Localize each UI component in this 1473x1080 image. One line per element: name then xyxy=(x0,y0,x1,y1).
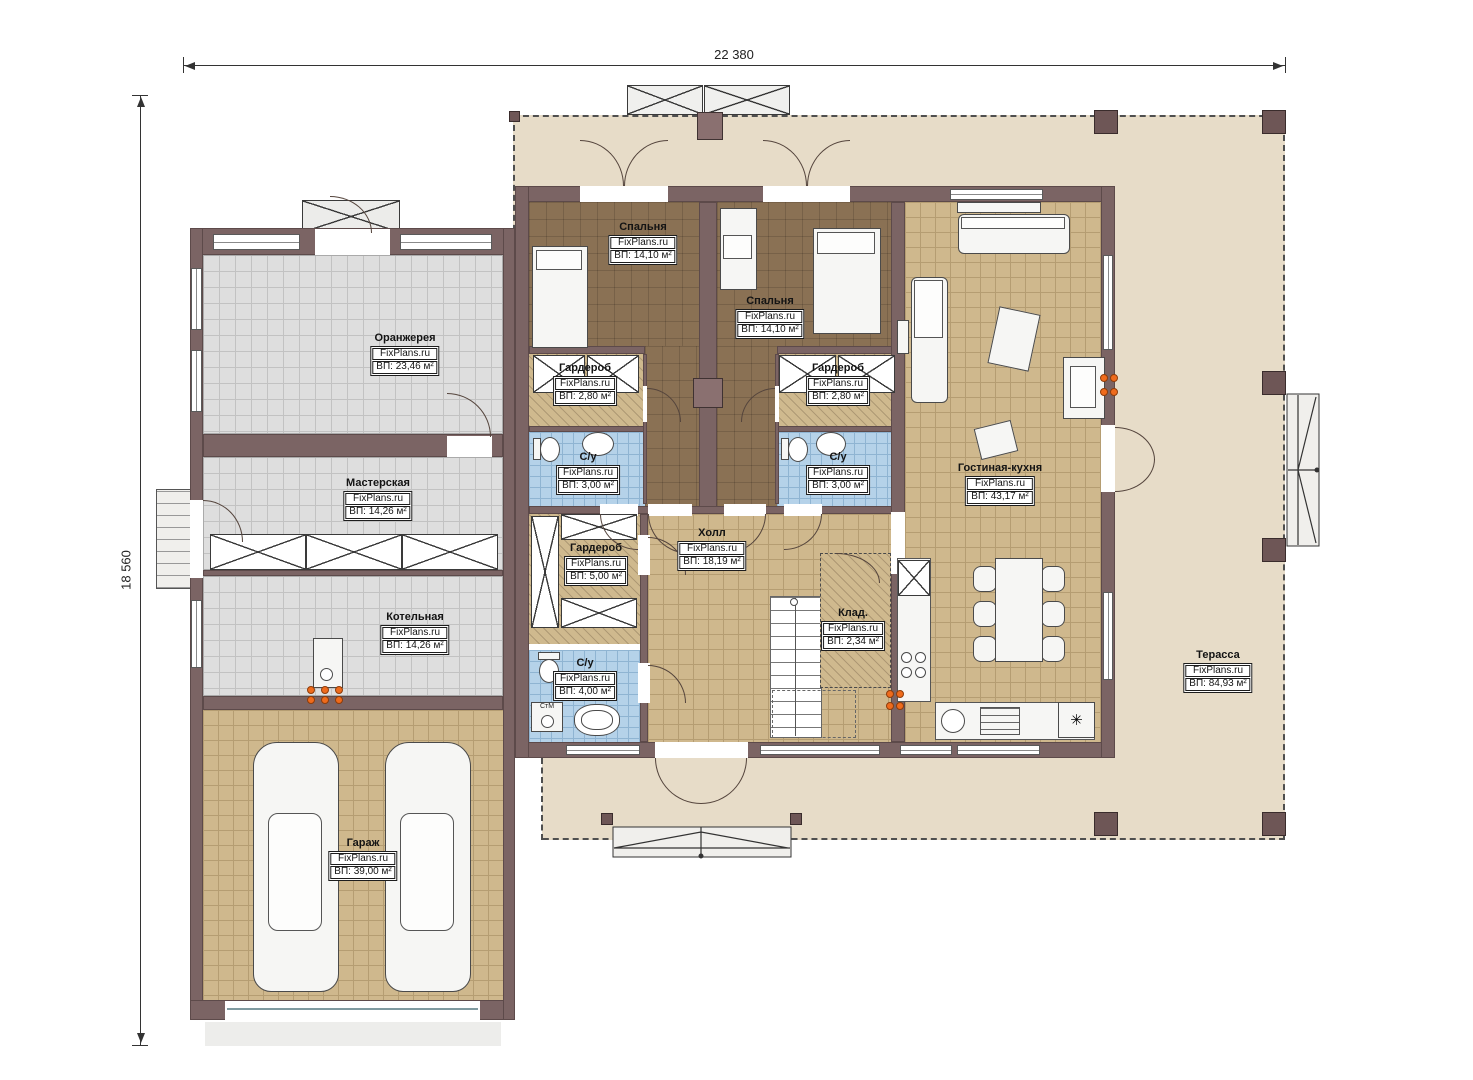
brand: FixPlans.ru xyxy=(555,673,615,686)
window xyxy=(950,189,1043,200)
wall xyxy=(777,426,897,432)
area-value: ВП: 39,00 м² xyxy=(330,866,395,879)
kitchen-cabinet xyxy=(898,560,930,596)
heat-dot xyxy=(1100,388,1108,396)
hob-burner xyxy=(901,652,912,663)
room-label-wardrobe2: ГардеробFixPlans.ruВП: 2,80 м² xyxy=(806,363,870,406)
wall xyxy=(515,186,529,758)
heat-dot xyxy=(886,702,894,710)
brand: FixPlans.ru xyxy=(345,493,410,506)
room-name: С/у xyxy=(553,658,617,670)
brand: FixPlans.ru xyxy=(610,237,675,250)
dining-chair xyxy=(973,566,997,592)
terrace-cut-edge xyxy=(541,758,543,840)
room-name: Спальня xyxy=(608,222,677,234)
room-name: Клад. xyxy=(821,608,885,620)
chimney-block xyxy=(697,112,723,140)
fridge: ✳ xyxy=(1058,702,1095,738)
garage-door-line xyxy=(227,1008,478,1010)
workshop-shelf xyxy=(402,534,498,570)
washer-door xyxy=(541,715,554,728)
boiler-floor xyxy=(203,576,503,696)
terrace-column xyxy=(1262,371,1286,395)
room-name: С/у xyxy=(556,452,620,464)
fridge-snowflake-icon: ✳ xyxy=(1070,711,1083,729)
room-label-garage: ГаражFixPlans.ruВП: 39,00 м² xyxy=(328,838,397,881)
dishwasher xyxy=(980,707,1020,735)
left-dimension-line xyxy=(140,95,141,1045)
brand: FixPlans.ru xyxy=(382,627,447,640)
heat-dot xyxy=(1110,374,1118,382)
heat-dot xyxy=(886,690,894,698)
room-label-bath1: С/уFixPlans.ruВП: 3,00 м² xyxy=(556,452,620,495)
boiler-gauge xyxy=(320,668,333,681)
room-name: С/у xyxy=(806,452,870,464)
bedroom2-strip xyxy=(717,346,777,506)
heat-dot xyxy=(896,702,904,710)
dim-tick xyxy=(1285,57,1286,73)
chaise-sofa xyxy=(911,277,948,403)
wardrobe-unit xyxy=(561,598,637,628)
room-label-wardrobe3: ГардеробFixPlans.ruВП: 5,00 м² xyxy=(564,543,628,586)
area-value: ВП: 2,80 м² xyxy=(808,391,868,404)
terrace-side-steps xyxy=(1286,393,1320,547)
main-entrance-opening xyxy=(655,742,748,758)
room-label-bedroom2: СпальняFixPlans.ruВП: 14,10 м² xyxy=(735,296,804,339)
room-name: Мастерская xyxy=(343,478,412,490)
area-value: ВП: 14,10 м² xyxy=(737,324,802,337)
cabinet-shelf xyxy=(723,235,752,259)
bedroom2-cabinet xyxy=(720,208,757,290)
stair-landing-dashed xyxy=(772,690,856,738)
window xyxy=(213,234,300,250)
heat-dot xyxy=(335,686,343,694)
heat-dot xyxy=(896,690,904,698)
brand: FixPlans.ru xyxy=(555,378,615,391)
room-name: Гардероб xyxy=(806,363,870,375)
pillow xyxy=(536,250,582,270)
dining-table xyxy=(995,558,1043,662)
car xyxy=(385,742,471,992)
window xyxy=(900,745,952,755)
wall-tv xyxy=(897,320,909,354)
bed xyxy=(813,228,881,334)
heat-dot xyxy=(321,686,329,694)
heat-dot xyxy=(321,696,329,704)
car-roof xyxy=(400,813,454,931)
terrace-corner-post xyxy=(509,111,520,122)
wall xyxy=(529,506,897,514)
tv-stand xyxy=(957,202,1041,213)
terrace-column xyxy=(1262,110,1286,134)
brand: FixPlans.ru xyxy=(808,467,868,480)
heat-dot xyxy=(307,686,315,694)
sofa xyxy=(958,214,1070,254)
area-value: ВП: 3,00 м² xyxy=(558,480,618,493)
brand: FixPlans.ru xyxy=(330,853,395,866)
hob-burner xyxy=(915,667,926,678)
room-name: Гардероб xyxy=(553,363,617,375)
room-label-bath3: С/уFixPlans.ruВП: 4,00 м² xyxy=(553,658,617,701)
area-value: ВП: 4,00 м² xyxy=(555,686,615,699)
room-name: Спальня xyxy=(735,296,804,308)
workshop-shelf xyxy=(306,534,402,570)
porch-steps xyxy=(612,826,792,860)
window xyxy=(1103,255,1113,350)
room-label-wardrobe1: ГардеробFixPlans.ruВП: 2,80 м² xyxy=(553,363,617,406)
area-value: ВП: 5,00 м² xyxy=(566,571,626,584)
dining-chair xyxy=(973,601,997,627)
sofa-back xyxy=(961,217,1065,229)
terrace-column xyxy=(1262,538,1286,562)
area-value: ВП: 23,46 м² xyxy=(372,361,437,374)
area-value: ВП: 3,00 м² xyxy=(808,480,868,493)
bed xyxy=(532,246,588,348)
wall xyxy=(203,570,503,576)
area-value: ВП: 14,26 м² xyxy=(345,506,410,519)
wall xyxy=(699,202,717,514)
brand: FixPlans.ru xyxy=(1185,665,1250,678)
area-value: ВП: 14,10 м² xyxy=(610,250,675,263)
washing-machine-label: СтМ xyxy=(540,703,554,710)
room-name: Оранжерея xyxy=(370,333,439,345)
wall xyxy=(503,228,515,1020)
fireplace xyxy=(1063,357,1105,419)
dining-chair xyxy=(1041,566,1065,592)
room-label-hall: ХоллFixPlans.ruВП: 18,19 м² xyxy=(677,528,746,571)
area-value: ВП: 14,26 м² xyxy=(382,640,447,653)
area-value: ВП: 18,19 м² xyxy=(679,556,744,569)
room-label-terrace: ТерассаFixPlans.ruВП: 84,93 м² xyxy=(1183,650,1252,693)
room-label-living: Гостиная-кухняFixPlans.ruВП: 43,17 м² xyxy=(958,463,1042,506)
area-value: ВП: 84,93 м² xyxy=(1185,678,1250,691)
dim-arrow-right xyxy=(1273,62,1283,70)
dim-arrow-down xyxy=(137,1033,145,1043)
wall xyxy=(777,346,897,354)
living-terrace-door xyxy=(1101,425,1115,492)
window xyxy=(191,268,202,330)
area-value: ВП: 2,34 м² xyxy=(823,636,883,649)
room-label-orangery: ОранжереяFixPlans.ruВП: 23,46 м² xyxy=(370,333,439,376)
car-roof xyxy=(268,813,322,931)
workshop-side-door xyxy=(190,500,203,578)
brand: FixPlans.ru xyxy=(558,467,618,480)
top-dimension-line xyxy=(183,65,1285,66)
wardrobe-unit xyxy=(531,516,559,628)
hob-burner xyxy=(915,652,926,663)
window xyxy=(191,600,202,668)
terrace-canopy-left xyxy=(627,85,703,115)
window xyxy=(566,745,640,755)
chaise-cushion xyxy=(914,280,943,338)
bedroom1-strip xyxy=(645,346,699,506)
dining-chair xyxy=(973,636,997,662)
heat-dot xyxy=(1100,374,1108,382)
heat-dot xyxy=(335,696,343,704)
brand: FixPlans.ru xyxy=(967,478,1032,491)
dim-tick xyxy=(183,57,184,73)
left-dimension-label: 18 560 xyxy=(119,550,134,590)
room-label-bedroom1: СпальняFixPlans.ruВП: 14,10 м² xyxy=(608,222,677,265)
toilet-bowl xyxy=(788,437,808,462)
room-name: Гардероб xyxy=(564,543,628,555)
fireplace-hearth xyxy=(1070,366,1096,408)
dim-tick xyxy=(132,95,148,96)
area-value: ВП: 43,17 м² xyxy=(967,491,1032,504)
room-label-storage: Клад.FixPlans.ruВП: 2,34 м² xyxy=(821,608,885,651)
orangery-door xyxy=(447,436,492,457)
brand: FixPlans.ru xyxy=(737,311,802,324)
side-entry-steps xyxy=(156,489,192,589)
porch-post xyxy=(601,813,613,825)
pillow xyxy=(817,232,875,254)
garage-apron xyxy=(205,1022,501,1046)
dining-chair xyxy=(1041,636,1065,662)
kitchen-sink xyxy=(941,709,965,733)
wall xyxy=(203,696,503,710)
bedroom2-terrace-door xyxy=(763,186,850,202)
brand: FixPlans.ru xyxy=(823,623,883,636)
window xyxy=(760,745,880,755)
window xyxy=(1103,592,1113,680)
room-name: Холл xyxy=(677,528,746,540)
room-label-boiler: КотельнаяFixPlans.ruВП: 14,26 м² xyxy=(380,612,449,655)
bedroom-flue-block xyxy=(693,378,723,408)
area-value: ВП: 2,80 м² xyxy=(555,391,615,404)
floor-plan-canvas: СтМ ✳ xyxy=(0,0,1473,1080)
window xyxy=(400,234,492,250)
wall xyxy=(529,426,645,432)
heat-dot xyxy=(307,696,315,704)
dim-arrow-up xyxy=(137,97,145,107)
room-label-bath2: С/уFixPlans.ruВП: 3,00 м² xyxy=(806,452,870,495)
brand: FixPlans.ru xyxy=(372,348,437,361)
room-label-workshop: МастерскаяFixPlans.ruВП: 14,26 м² xyxy=(343,478,412,521)
room-name: Терасса xyxy=(1183,650,1252,662)
dining-chair xyxy=(1041,601,1065,627)
dim-arrow-left xyxy=(185,62,195,70)
window xyxy=(957,745,1040,755)
hob-burner xyxy=(901,667,912,678)
terrace-column xyxy=(1094,812,1118,836)
brand: FixPlans.ru xyxy=(566,558,626,571)
top-dimension-label: 22 380 xyxy=(714,47,754,62)
brand: FixPlans.ru xyxy=(808,378,868,391)
terrace-canopy-right xyxy=(704,85,790,115)
heat-dot xyxy=(1110,388,1118,396)
bedroom1-terrace-door xyxy=(580,186,668,202)
window xyxy=(191,350,202,412)
dim-tick xyxy=(132,1045,148,1046)
bathtub-inner xyxy=(581,710,613,730)
car xyxy=(253,742,339,992)
room-name: Котельная xyxy=(380,612,449,624)
washing-machine: СтМ xyxy=(531,702,563,732)
room-name: Гостиная-кухня xyxy=(958,463,1042,475)
terrace-column xyxy=(1262,812,1286,836)
terrace-column xyxy=(1094,110,1118,134)
brand: FixPlans.ru xyxy=(679,543,744,556)
room-name: Гараж xyxy=(328,838,397,850)
stair-start-marker xyxy=(790,598,798,606)
porch-post xyxy=(790,813,802,825)
wall xyxy=(643,354,647,504)
garage-door-opening xyxy=(225,1001,480,1020)
